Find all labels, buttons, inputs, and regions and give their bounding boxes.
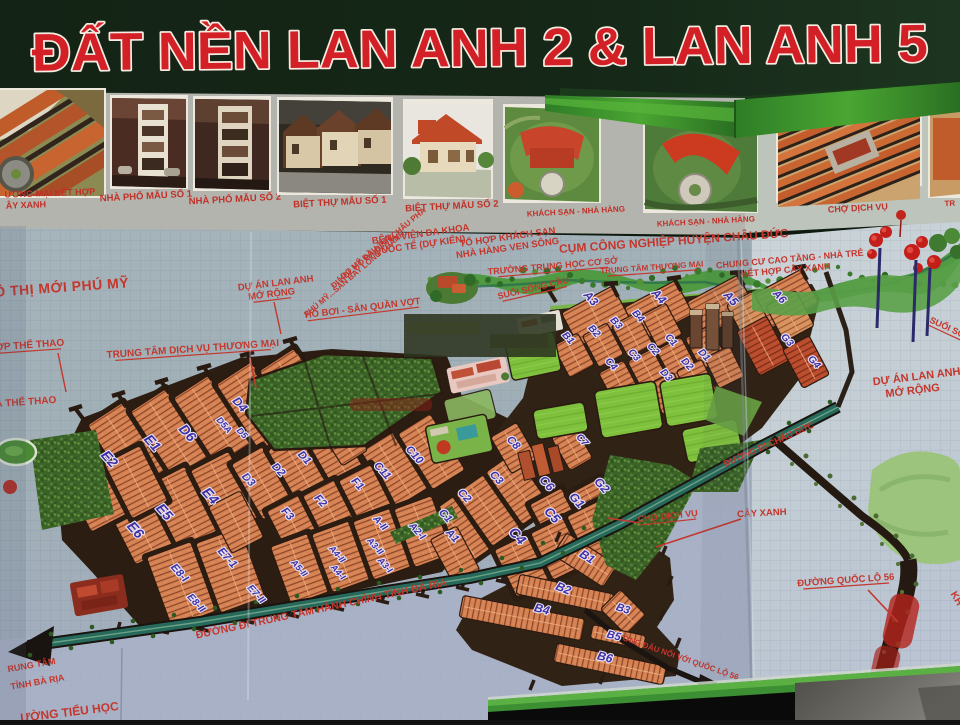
- svg-text:ĐẤT NỀN LAN ANH 2 & LAN ANH 5: ĐẤT NỀN LAN ANH 2 & LAN ANH 5: [32, 13, 929, 82]
- svg-text:ÂY XANH: ÂY XANH: [6, 198, 47, 210]
- svg-text:TR: TR: [944, 199, 955, 209]
